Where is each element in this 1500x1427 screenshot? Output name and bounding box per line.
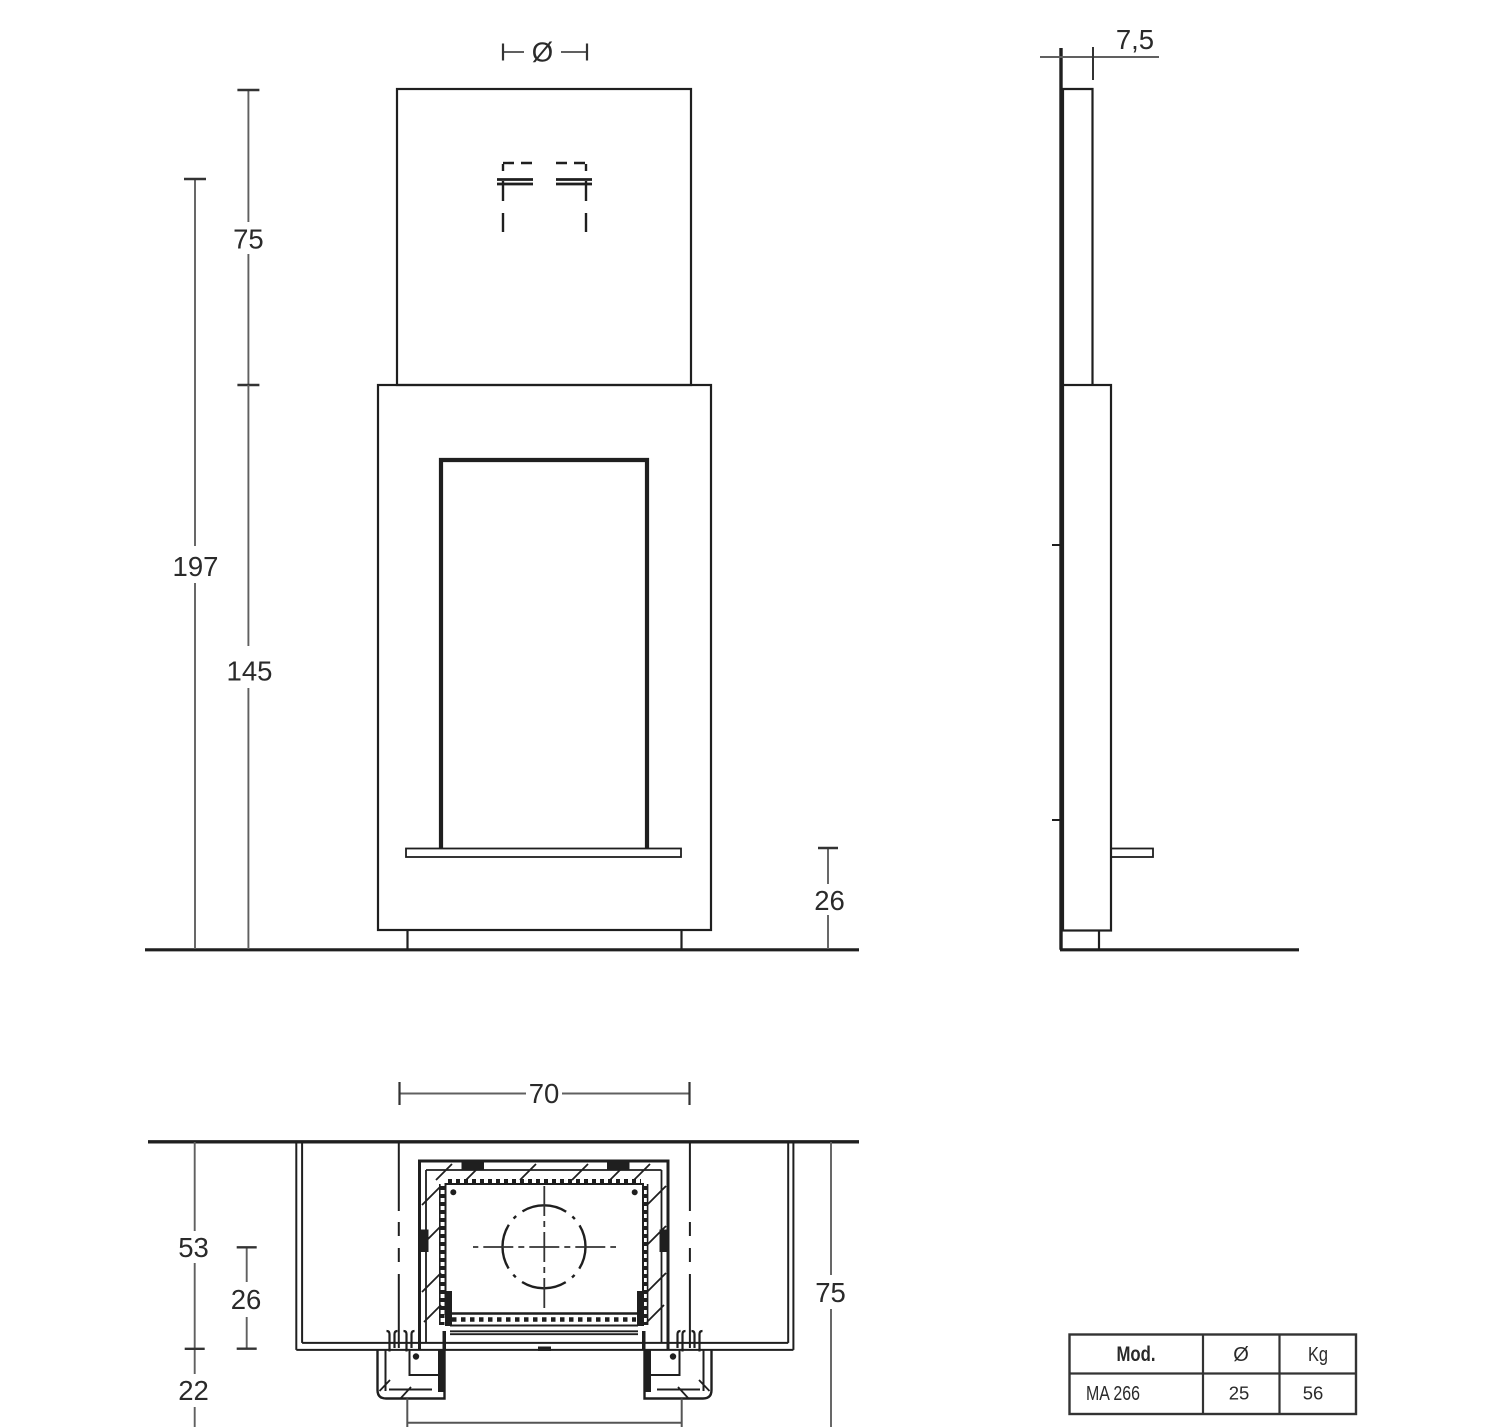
svg-text:Kg: Kg	[1308, 1344, 1328, 1366]
svg-text:56: 56	[1303, 1383, 1324, 1404]
svg-text:MA 266: MA 266	[1086, 1383, 1140, 1405]
svg-text:26: 26	[814, 885, 845, 916]
svg-text:Ø: Ø	[1233, 1344, 1249, 1366]
svg-text:25: 25	[1229, 1383, 1250, 1404]
svg-text:75: 75	[233, 224, 264, 255]
svg-text:70: 70	[529, 1078, 560, 1109]
svg-text:53: 53	[178, 1232, 209, 1263]
svg-text:26: 26	[231, 1284, 262, 1315]
svg-text:7,5: 7,5	[1116, 24, 1154, 55]
svg-text:75: 75	[815, 1277, 846, 1308]
svg-text:197: 197	[173, 551, 219, 582]
svg-text:Mod.: Mod.	[1117, 1343, 1156, 1366]
svg-text:22: 22	[178, 1375, 209, 1406]
svg-text:Ø: Ø	[532, 37, 553, 68]
svg-text:145: 145	[227, 656, 273, 687]
